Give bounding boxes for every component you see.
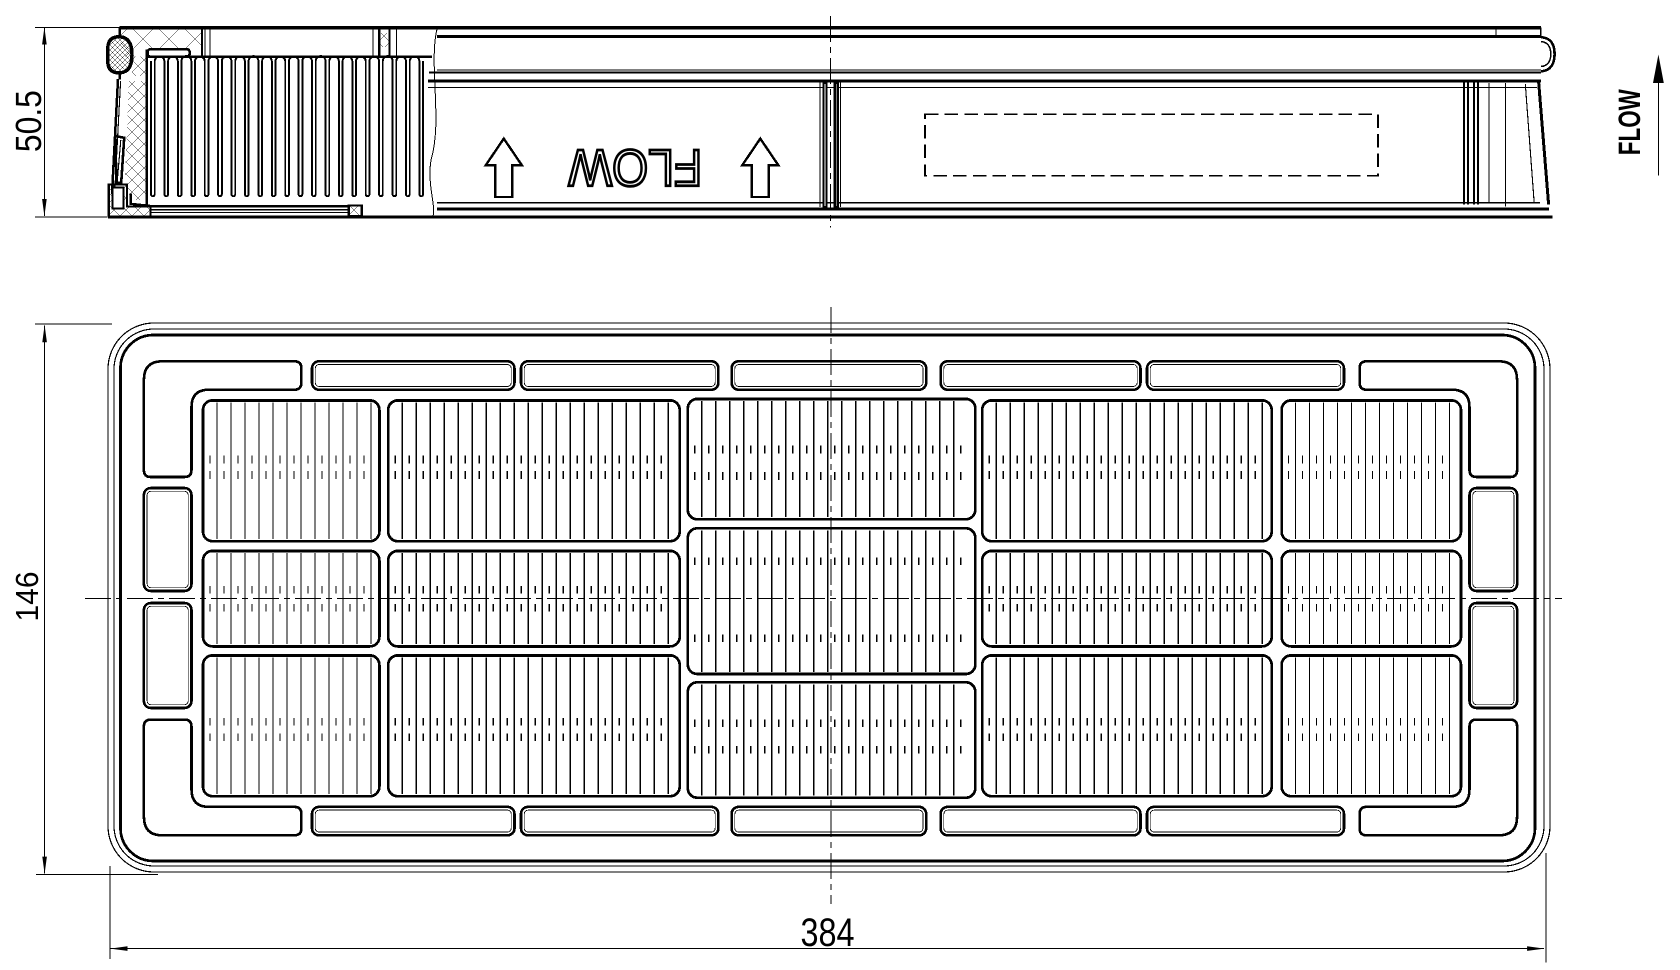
svg-text:FLOW: FLOW [1612, 89, 1647, 156]
svg-text:FLOW: FLOW [568, 138, 702, 196]
svg-text:50.5: 50.5 [8, 90, 49, 152]
svg-text:384: 384 [800, 911, 854, 955]
svg-text:146: 146 [9, 572, 45, 622]
